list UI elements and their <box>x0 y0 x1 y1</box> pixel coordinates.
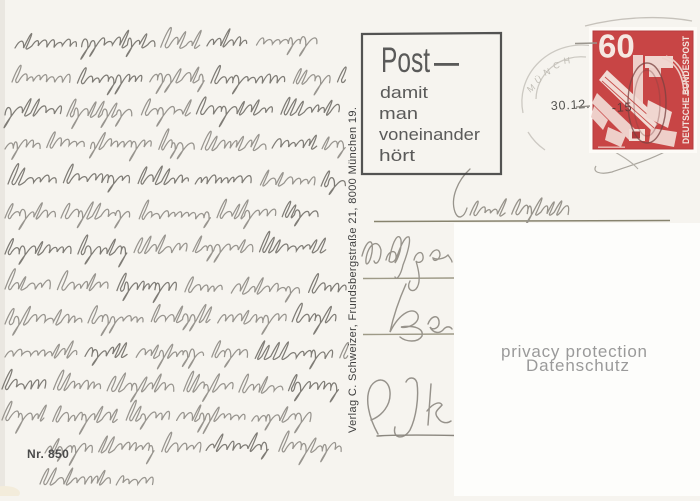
svg-text:DEUTSCHE BUNDESPOST: DEUTSCHE BUNDESPOST <box>681 36 692 144</box>
svg-text:60: 60 <box>598 28 635 65</box>
svg-text:hört: hört <box>379 146 415 165</box>
svg-text:damit: damit <box>380 83 428 102</box>
svg-text:Nr. 850: Nr. 850 <box>27 447 69 461</box>
svg-text:Datenschutz: Datenschutz <box>526 356 629 375</box>
svg-text:-15: -15 <box>611 100 632 115</box>
svg-text:Post: Post <box>381 41 430 80</box>
svg-text:30.12.: 30.12. <box>550 97 590 113</box>
svg-text:Verlag C. Schweizer, Frundsber: Verlag C. Schweizer, Frundsbergstraße 21… <box>347 107 359 433</box>
svg-text:voneinander: voneinander <box>379 125 480 144</box>
svg-text:H: H <box>563 55 571 66</box>
svg-text:man: man <box>379 104 418 123</box>
